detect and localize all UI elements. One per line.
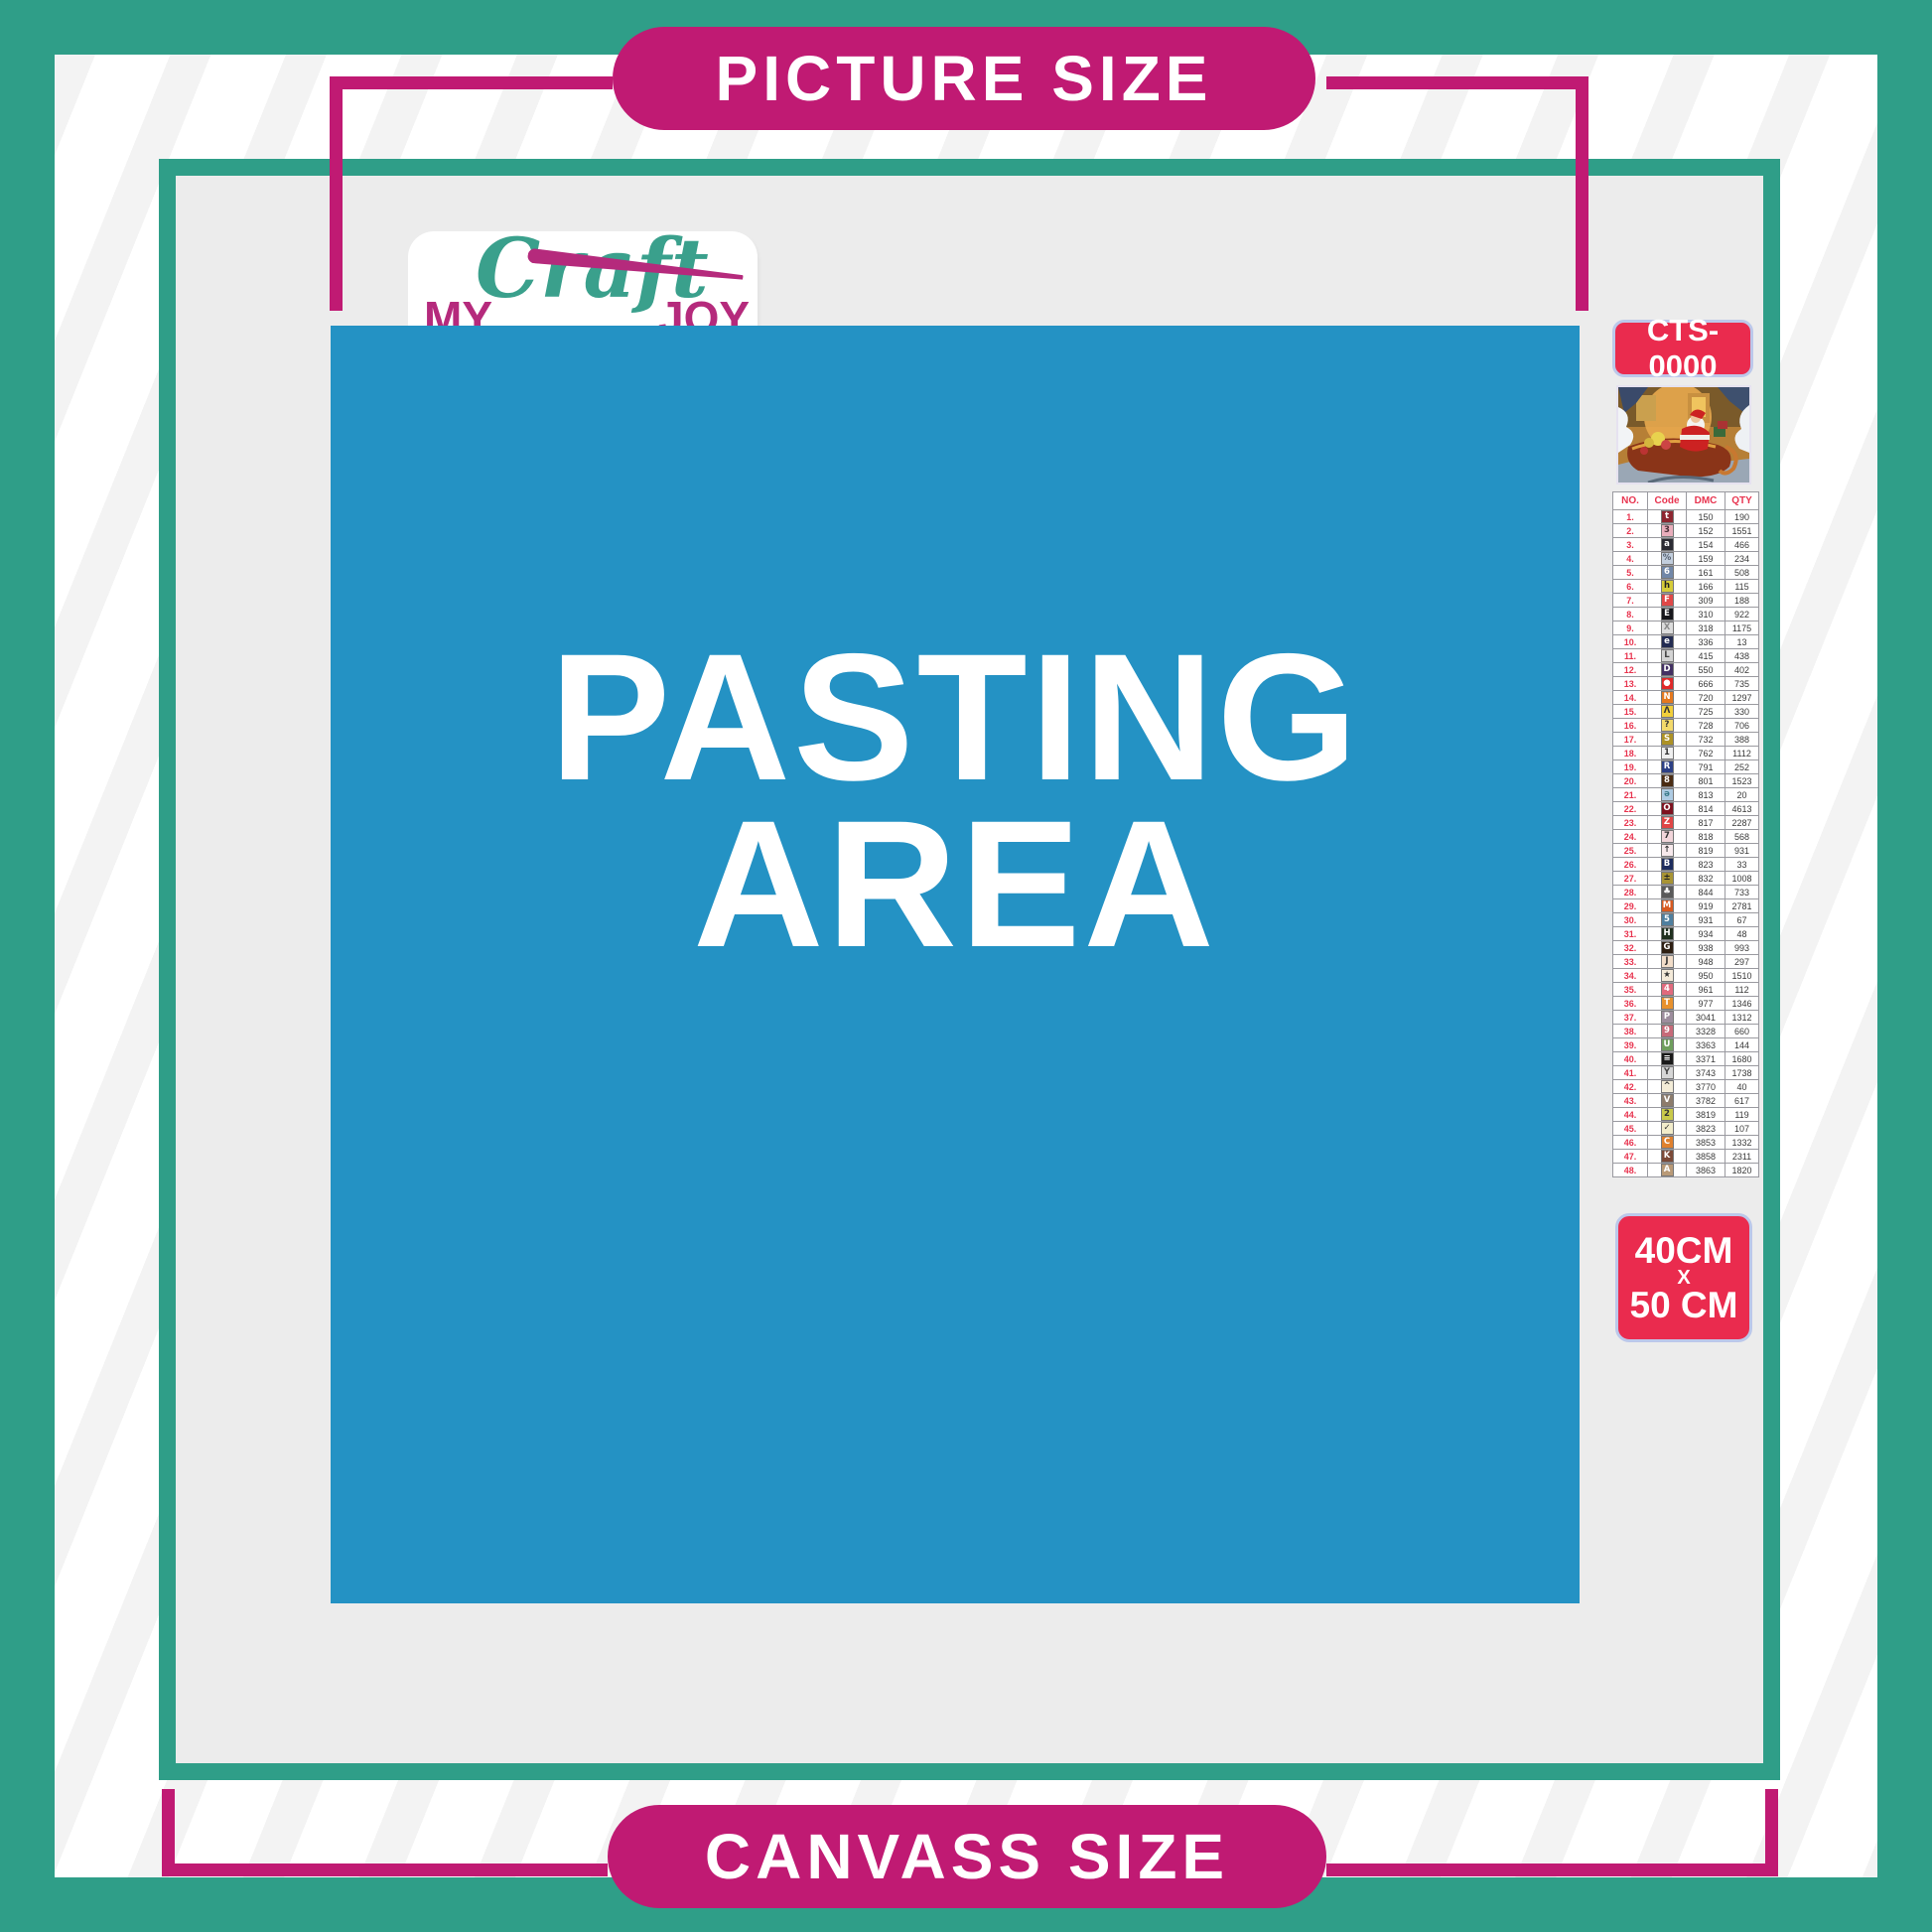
cell-dmc: 3853: [1687, 1136, 1725, 1150]
dmc-table-row: 1.t150190: [1613, 510, 1759, 524]
pasting-area-label: PASTING AREA: [550, 634, 1360, 967]
dmc-table-row: 23.Z8172287: [1613, 816, 1759, 830]
cell-dmc: 725: [1687, 705, 1725, 719]
cell-no: 14.: [1613, 691, 1648, 705]
dmc-table-row: 31.H93448: [1613, 927, 1759, 941]
cell-code: G: [1648, 941, 1687, 955]
color-symbol-chip: X: [1661, 621, 1674, 634]
cell-no: 18.: [1613, 747, 1648, 760]
color-symbol-chip: ✓: [1661, 1122, 1674, 1135]
cell-code: h: [1648, 580, 1687, 594]
cell-qty: 2311: [1725, 1150, 1759, 1164]
cell-dmc: 159: [1687, 552, 1725, 566]
cell-no: 21.: [1613, 788, 1648, 802]
cell-qty: 388: [1725, 733, 1759, 747]
cell-code: 1: [1648, 747, 1687, 760]
dmc-color-table: NO. Code DMC QTY 1.t1501902.315215513.a1…: [1612, 491, 1759, 1177]
color-symbol-chip: 8: [1661, 774, 1674, 787]
cell-code: 9: [1648, 1025, 1687, 1038]
color-symbol-chip: U: [1661, 1038, 1674, 1051]
cell-no: 39.: [1613, 1038, 1648, 1052]
cell-code: H: [1648, 927, 1687, 941]
dmc-table-row: 42.^377040: [1613, 1080, 1759, 1094]
color-symbol-chip: E: [1661, 608, 1674, 621]
cell-dmc: 732: [1687, 733, 1725, 747]
dmc-table-row: 4.%159234: [1613, 552, 1759, 566]
dmc-table-row: 14.N7201297: [1613, 691, 1759, 705]
cell-dmc: 801: [1687, 774, 1725, 788]
cell-dmc: 550: [1687, 663, 1725, 677]
dmc-table-row: 33.J948297: [1613, 955, 1759, 969]
color-symbol-chip: ♣: [1661, 886, 1674, 898]
cell-no: 46.: [1613, 1136, 1648, 1150]
cell-no: 11.: [1613, 649, 1648, 663]
cell-no: 6.: [1613, 580, 1648, 594]
color-symbol-chip: B: [1661, 858, 1674, 871]
cell-no: 10.: [1613, 635, 1648, 649]
cell-no: 30.: [1613, 913, 1648, 927]
cell-dmc: 938: [1687, 941, 1725, 955]
cell-no: 47.: [1613, 1150, 1648, 1164]
cell-qty: 402: [1725, 663, 1759, 677]
color-symbol-chip: 2: [1661, 1108, 1674, 1121]
cell-dmc: 818: [1687, 830, 1725, 844]
cell-qty: 568: [1725, 830, 1759, 844]
cell-code: t: [1648, 510, 1687, 524]
cell-qty: 508: [1725, 566, 1759, 580]
cell-code: T: [1648, 997, 1687, 1011]
cell-dmc: 318: [1687, 621, 1725, 635]
cell-code: ?: [1648, 719, 1687, 733]
cell-no: 22.: [1613, 802, 1648, 816]
cell-no: 34.: [1613, 969, 1648, 983]
cell-no: 13.: [1613, 677, 1648, 691]
color-symbol-chip: 5: [1661, 913, 1674, 926]
dmc-table-row: 9.X3181175: [1613, 621, 1759, 635]
color-symbol-chip: S: [1661, 733, 1674, 746]
cell-qty: 190: [1725, 510, 1759, 524]
cell-dmc: 310: [1687, 608, 1725, 621]
col-header-code: Code: [1648, 492, 1687, 510]
cell-qty: 112: [1725, 983, 1759, 997]
color-symbol-chip: ↑: [1661, 844, 1674, 857]
dmc-table-row: 38.93328660: [1613, 1025, 1759, 1038]
dmc-table-row: 47.K38582311: [1613, 1150, 1759, 1164]
color-symbol-chip: e: [1661, 635, 1674, 648]
cell-code: J: [1648, 955, 1687, 969]
cell-no: 38.: [1613, 1025, 1648, 1038]
cell-code: Ʌ: [1648, 705, 1687, 719]
cell-no: 12.: [1613, 663, 1648, 677]
cell-no: 17.: [1613, 733, 1648, 747]
dmc-table-row: 8.E310922: [1613, 608, 1759, 621]
col-header-dmc: DMC: [1687, 492, 1725, 510]
dmc-table-row: 13.●666735: [1613, 677, 1759, 691]
cell-qty: 1738: [1725, 1066, 1759, 1080]
color-symbol-chip: a: [1661, 538, 1674, 551]
cell-qty: 1297: [1725, 691, 1759, 705]
color-symbol-chip: K: [1661, 1150, 1674, 1163]
cell-qty: 438: [1725, 649, 1759, 663]
cell-dmc: 728: [1687, 719, 1725, 733]
cell-qty: 1523: [1725, 774, 1759, 788]
cell-code: 4: [1648, 983, 1687, 997]
color-symbol-chip: A: [1661, 1164, 1674, 1176]
cell-dmc: 813: [1687, 788, 1725, 802]
canvass-size-banner: CANVASS SIZE: [608, 1805, 1326, 1908]
dmc-table-row: 18.17621112: [1613, 747, 1759, 760]
color-symbol-chip: t: [1661, 510, 1674, 523]
cell-no: 31.: [1613, 927, 1648, 941]
cell-dmc: 3858: [1687, 1150, 1725, 1164]
cell-code: ə: [1648, 788, 1687, 802]
cell-dmc: 336: [1687, 635, 1725, 649]
size-badge: 40CM X 50 CM: [1615, 1213, 1752, 1342]
cell-qty: 119: [1725, 1108, 1759, 1122]
product-thumbnail: [1616, 385, 1751, 484]
cell-no: 24.: [1613, 830, 1648, 844]
cell-no: 15.: [1613, 705, 1648, 719]
cell-qty: 297: [1725, 955, 1759, 969]
cell-code: 8: [1648, 774, 1687, 788]
color-symbol-chip: h: [1661, 580, 1674, 593]
cell-no: 32.: [1613, 941, 1648, 955]
cell-dmc: 948: [1687, 955, 1725, 969]
cell-no: 33.: [1613, 955, 1648, 969]
dmc-table-row: 25.↑819931: [1613, 844, 1759, 858]
cell-code: e: [1648, 635, 1687, 649]
cell-qty: 466: [1725, 538, 1759, 552]
dmc-table-row: 30.593167: [1613, 913, 1759, 927]
cell-code: ^: [1648, 1080, 1687, 1094]
cell-no: 3.: [1613, 538, 1648, 552]
background-panel: MY Craft JOY PASTING AREA CTS-0000: [55, 55, 1877, 1877]
cell-code: Y: [1648, 1066, 1687, 1080]
cell-dmc: 823: [1687, 858, 1725, 872]
cell-qty: 1820: [1725, 1164, 1759, 1177]
dmc-table-row: 43.V3782617: [1613, 1094, 1759, 1108]
cell-code: ●: [1648, 677, 1687, 691]
cell-dmc: 3819: [1687, 1108, 1725, 1122]
cell-dmc: 3770: [1687, 1080, 1725, 1094]
cell-code: V: [1648, 1094, 1687, 1108]
cell-code: C: [1648, 1136, 1687, 1150]
cell-dmc: 309: [1687, 594, 1725, 608]
dmc-table-row: 45.✓3823107: [1613, 1122, 1759, 1136]
dmc-table-row: 3.a154466: [1613, 538, 1759, 552]
cell-no: 19.: [1613, 760, 1648, 774]
cell-code: ♣: [1648, 886, 1687, 899]
cell-code: 7: [1648, 830, 1687, 844]
color-symbol-chip: P: [1661, 1011, 1674, 1024]
cell-qty: 660: [1725, 1025, 1759, 1038]
color-symbol-chip: ?: [1661, 719, 1674, 732]
cell-qty: 33: [1725, 858, 1759, 872]
color-symbol-chip: %: [1661, 552, 1674, 565]
cell-qty: 706: [1725, 719, 1759, 733]
dmc-table-row: 37.P30411312: [1613, 1011, 1759, 1025]
cell-no: 25.: [1613, 844, 1648, 858]
dmc-table-row: 22.O8144613: [1613, 802, 1759, 816]
canvass-size-corner-right: [1765, 1789, 1778, 1863]
dmc-table-row: 26.B82333: [1613, 858, 1759, 872]
dmc-table-body: 1.t1501902.315215513.a1544664.%1592345.6…: [1613, 510, 1759, 1177]
dmc-table-row: 34.★9501510: [1613, 969, 1759, 983]
dmc-table-row: 10.e33613: [1613, 635, 1759, 649]
cell-qty: 144: [1725, 1038, 1759, 1052]
cell-dmc: 720: [1687, 691, 1725, 705]
cell-code: ±: [1648, 872, 1687, 886]
cell-dmc: 3782: [1687, 1094, 1725, 1108]
dmc-table-row: 15.Ʌ725330: [1613, 705, 1759, 719]
dmc-table-row: 35.4961112: [1613, 983, 1759, 997]
color-symbol-chip: V: [1661, 1094, 1674, 1107]
color-symbol-chip: ^: [1661, 1080, 1674, 1093]
color-symbol-chip: N: [1661, 691, 1674, 704]
cell-dmc: 961: [1687, 983, 1725, 997]
cell-qty: 1112: [1725, 747, 1759, 760]
canvass-size-corner-left: [162, 1789, 175, 1863]
dmc-table-row: 5.6161508: [1613, 566, 1759, 580]
cell-no: 45.: [1613, 1122, 1648, 1136]
cell-no: 8.: [1613, 608, 1648, 621]
canvass-size-line-left: [162, 1863, 608, 1876]
col-header-no: NO.: [1613, 492, 1648, 510]
cell-dmc: 3823: [1687, 1122, 1725, 1136]
cell-dmc: 166: [1687, 580, 1725, 594]
cell-no: 1.: [1613, 510, 1648, 524]
cell-code: S: [1648, 733, 1687, 747]
cell-no: 29.: [1613, 899, 1648, 913]
cell-dmc: 832: [1687, 872, 1725, 886]
color-symbol-chip: 1: [1661, 747, 1674, 759]
cell-code: B: [1648, 858, 1687, 872]
cell-no: 27.: [1613, 872, 1648, 886]
cell-no: 5.: [1613, 566, 1648, 580]
dmc-table-row: 17.S732388: [1613, 733, 1759, 747]
dmc-table-row: 29.M9192781: [1613, 899, 1759, 913]
cell-dmc: 977: [1687, 997, 1725, 1011]
dmc-table-row: 32.G938993: [1613, 941, 1759, 955]
cell-no: 36.: [1613, 997, 1648, 1011]
cell-code: Z: [1648, 816, 1687, 830]
dmc-table-row: 39.U3363144: [1613, 1038, 1759, 1052]
color-symbol-chip: ≡: [1661, 1052, 1674, 1065]
cell-qty: 107: [1725, 1122, 1759, 1136]
color-symbol-chip: 7: [1661, 830, 1674, 843]
cell-no: 37.: [1613, 1011, 1648, 1025]
cell-no: 43.: [1613, 1094, 1648, 1108]
cell-code: 5: [1648, 913, 1687, 927]
cell-qty: 1551: [1725, 524, 1759, 538]
cell-dmc: 814: [1687, 802, 1725, 816]
cell-qty: 1510: [1725, 969, 1759, 983]
cell-qty: 2287: [1725, 816, 1759, 830]
dmc-table-row: 24.7818568: [1613, 830, 1759, 844]
cell-no: 4.: [1613, 552, 1648, 566]
dmc-table-row: 20.88011523: [1613, 774, 1759, 788]
cell-no: 2.: [1613, 524, 1648, 538]
color-symbol-chip: C: [1661, 1136, 1674, 1149]
cell-qty: 1008: [1725, 872, 1759, 886]
cell-qty: 735: [1725, 677, 1759, 691]
color-symbol-chip: Y: [1661, 1066, 1674, 1079]
cell-dmc: 154: [1687, 538, 1725, 552]
cell-no: 44.: [1613, 1108, 1648, 1122]
cell-no: 20.: [1613, 774, 1648, 788]
cell-no: 26.: [1613, 858, 1648, 872]
cell-code: ★: [1648, 969, 1687, 983]
cell-dmc: 934: [1687, 927, 1725, 941]
cell-qty: 922: [1725, 608, 1759, 621]
cell-qty: 4613: [1725, 802, 1759, 816]
cell-code: D: [1648, 663, 1687, 677]
cell-dmc: 3371: [1687, 1052, 1725, 1066]
cell-code: ↑: [1648, 844, 1687, 858]
cell-no: 16.: [1613, 719, 1648, 733]
cell-qty: 1175: [1725, 621, 1759, 635]
cell-no: 28.: [1613, 886, 1648, 899]
cell-dmc: 819: [1687, 844, 1725, 858]
dmc-table-row: 44.23819119: [1613, 1108, 1759, 1122]
cell-dmc: 161: [1687, 566, 1725, 580]
cell-no: 23.: [1613, 816, 1648, 830]
canvass-size-line-right: [1326, 1863, 1778, 1876]
cell-code: 6: [1648, 566, 1687, 580]
cell-qty: 733: [1725, 886, 1759, 899]
color-symbol-chip: T: [1661, 997, 1674, 1010]
col-header-qty: QTY: [1725, 492, 1759, 510]
cell-no: 9.: [1613, 621, 1648, 635]
cell-code: F: [1648, 594, 1687, 608]
dmc-table-row: 28.♣844733: [1613, 886, 1759, 899]
cell-no: 48.: [1613, 1164, 1648, 1177]
picture-size-corner-right: [1576, 76, 1588, 311]
sku-badge: CTS-0000: [1612, 320, 1753, 377]
dmc-table-row: 27.±8321008: [1613, 872, 1759, 886]
cell-dmc: 950: [1687, 969, 1725, 983]
santa-sleigh-illustration: [1618, 387, 1749, 483]
dmc-table-row: 46.C38531332: [1613, 1136, 1759, 1150]
cell-qty: 13: [1725, 635, 1759, 649]
color-symbol-chip: R: [1661, 760, 1674, 773]
cell-qty: 330: [1725, 705, 1759, 719]
cell-qty: 67: [1725, 913, 1759, 927]
cell-code: R: [1648, 760, 1687, 774]
pasting-area: PASTING AREA: [331, 326, 1580, 1603]
dmc-table-row: 12.D550402: [1613, 663, 1759, 677]
cell-no: 7.: [1613, 594, 1648, 608]
cell-qty: 20: [1725, 788, 1759, 802]
cell-dmc: 817: [1687, 816, 1725, 830]
cell-dmc: 931: [1687, 913, 1725, 927]
dmc-table-row: 16.?728706: [1613, 719, 1759, 733]
cell-dmc: 415: [1687, 649, 1725, 663]
cell-qty: 188: [1725, 594, 1759, 608]
color-symbol-chip: ±: [1661, 872, 1674, 885]
cell-code: ✓: [1648, 1122, 1687, 1136]
picture-size-line-left: [330, 76, 613, 89]
dmc-table-row: 40.≡33711680: [1613, 1052, 1759, 1066]
cell-dmc: 844: [1687, 886, 1725, 899]
cell-no: 40.: [1613, 1052, 1648, 1066]
color-symbol-chip: H: [1661, 927, 1674, 940]
dmc-table-row: 7.F309188: [1613, 594, 1759, 608]
picture-size-banner: PICTURE SIZE: [613, 27, 1315, 130]
color-symbol-chip: F: [1661, 594, 1674, 607]
color-symbol-chip: 6: [1661, 566, 1674, 579]
cell-code: E: [1648, 608, 1687, 621]
cell-dmc: 152: [1687, 524, 1725, 538]
dmc-table-row: 11.L415438: [1613, 649, 1759, 663]
color-symbol-chip: ★: [1661, 969, 1674, 982]
dmc-table-row: 41.Y37431738: [1613, 1066, 1759, 1080]
cell-dmc: 3041: [1687, 1011, 1725, 1025]
cell-code: K: [1648, 1150, 1687, 1164]
cell-code: O: [1648, 802, 1687, 816]
color-symbol-chip: ə: [1661, 788, 1674, 801]
color-symbol-chip: 3: [1661, 524, 1674, 537]
color-symbol-chip: ●: [1661, 677, 1674, 690]
dmc-table-row: 2.31521551: [1613, 524, 1759, 538]
cell-qty: 234: [1725, 552, 1759, 566]
dmc-table-row: 48.A38631820: [1613, 1164, 1759, 1177]
cell-dmc: 666: [1687, 677, 1725, 691]
dmc-table-row: 19.R791252: [1613, 760, 1759, 774]
cell-code: X: [1648, 621, 1687, 635]
cell-code: 3: [1648, 524, 1687, 538]
picture-size-corner-left: [330, 76, 343, 311]
cell-code: A: [1648, 1164, 1687, 1177]
cell-dmc: 919: [1687, 899, 1725, 913]
cell-dmc: 3743: [1687, 1066, 1725, 1080]
cell-code: %: [1648, 552, 1687, 566]
cell-dmc: 3363: [1687, 1038, 1725, 1052]
cell-code: a: [1648, 538, 1687, 552]
cell-dmc: 150: [1687, 510, 1725, 524]
cell-qty: 1332: [1725, 1136, 1759, 1150]
cell-code: L: [1648, 649, 1687, 663]
color-symbol-chip: D: [1661, 663, 1674, 676]
cell-qty: 1346: [1725, 997, 1759, 1011]
cell-qty: 48: [1725, 927, 1759, 941]
color-symbol-chip: L: [1661, 649, 1674, 662]
cell-code: M: [1648, 899, 1687, 913]
cell-qty: 931: [1725, 844, 1759, 858]
cell-qty: 1680: [1725, 1052, 1759, 1066]
cell-qty: 40: [1725, 1080, 1759, 1094]
cell-qty: 2781: [1725, 899, 1759, 913]
color-symbol-chip: 9: [1661, 1025, 1674, 1037]
cell-dmc: 791: [1687, 760, 1725, 774]
color-symbol-chip: O: [1661, 802, 1674, 815]
cell-qty: 115: [1725, 580, 1759, 594]
color-symbol-chip: M: [1661, 899, 1674, 912]
dmc-table-row: 6.h166115: [1613, 580, 1759, 594]
color-symbol-chip: Ʌ: [1661, 705, 1674, 718]
color-symbol-chip: Z: [1661, 816, 1674, 829]
cell-qty: 617: [1725, 1094, 1759, 1108]
cell-qty: 993: [1725, 941, 1759, 955]
dmc-table-row: 36.T9771346: [1613, 997, 1759, 1011]
color-symbol-chip: J: [1661, 955, 1674, 968]
cell-dmc: 3328: [1687, 1025, 1725, 1038]
cell-code: ≡: [1648, 1052, 1687, 1066]
dmc-table-header: NO. Code DMC QTY: [1613, 492, 1759, 510]
picture-size-line-right: [1326, 76, 1588, 89]
dmc-table-row: 21.ə81320: [1613, 788, 1759, 802]
cell-no: 42.: [1613, 1080, 1648, 1094]
